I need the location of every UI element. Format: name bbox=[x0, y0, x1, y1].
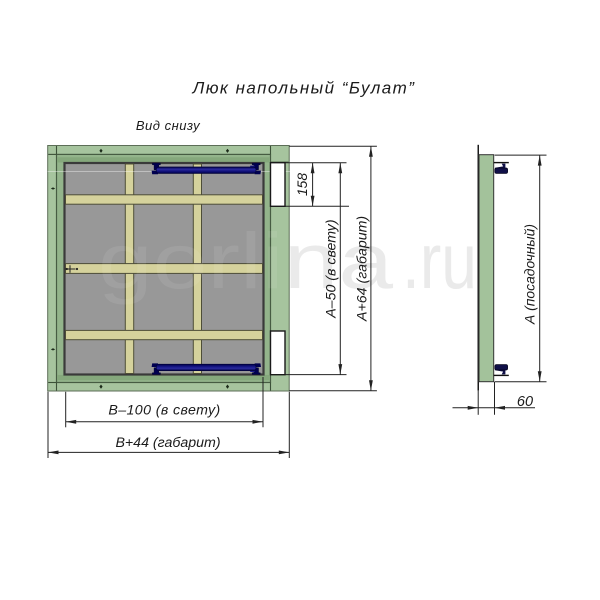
svg-text:А (посадочный): А (посадочный) bbox=[522, 224, 538, 325]
svg-text:А–50 (в свету): А–50 (в свету) bbox=[324, 219, 340, 318]
svg-text:Люк напольный “Булат”: Люк напольный “Булат” bbox=[192, 79, 416, 98]
svg-text:В+44 (габарит): В+44 (габарит) bbox=[115, 435, 220, 451]
svg-text:.ru: .ru bbox=[402, 216, 477, 305]
svg-text:А+64 (габарит): А+64 (габарит) bbox=[355, 216, 371, 322]
svg-text:60: 60 bbox=[517, 394, 533, 410]
svg-text:Вид снизу: Вид снизу bbox=[136, 118, 201, 133]
svg-text:158: 158 bbox=[295, 173, 310, 196]
svg-text:gorlina: gorlina bbox=[98, 216, 393, 305]
svg-text:В–100 (в свету): В–100 (в свету) bbox=[108, 403, 220, 419]
